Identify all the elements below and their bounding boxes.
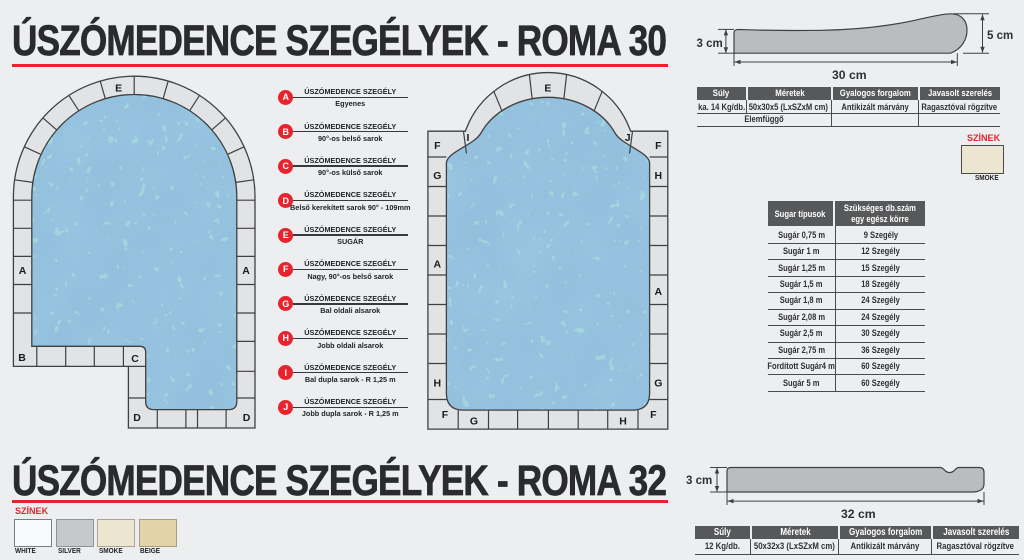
svg-text:D: D (133, 412, 141, 424)
svg-text:H: H (434, 377, 442, 389)
svg-text:A: A (242, 265, 250, 277)
svg-text:B: B (18, 352, 26, 364)
svg-text:F: F (434, 140, 441, 152)
svg-text:H: H (655, 170, 663, 182)
svg-text:A: A (655, 286, 663, 298)
svg-text:E: E (115, 83, 122, 95)
svg-text:J: J (625, 132, 631, 144)
svg-text:E: E (544, 83, 551, 95)
svg-text:A: A (19, 265, 27, 277)
svg-text:G: G (470, 415, 478, 427)
svg-text:A: A (434, 259, 442, 271)
svg-text:I: I (467, 132, 470, 144)
svg-text:H: H (619, 415, 627, 427)
svg-text:C: C (131, 353, 139, 365)
svg-text:F: F (650, 409, 657, 421)
svg-text:G: G (433, 170, 441, 182)
svg-text:F: F (655, 140, 662, 152)
svg-text:G: G (654, 377, 662, 389)
svg-text:F: F (442, 409, 449, 421)
svg-text:D: D (243, 412, 251, 424)
